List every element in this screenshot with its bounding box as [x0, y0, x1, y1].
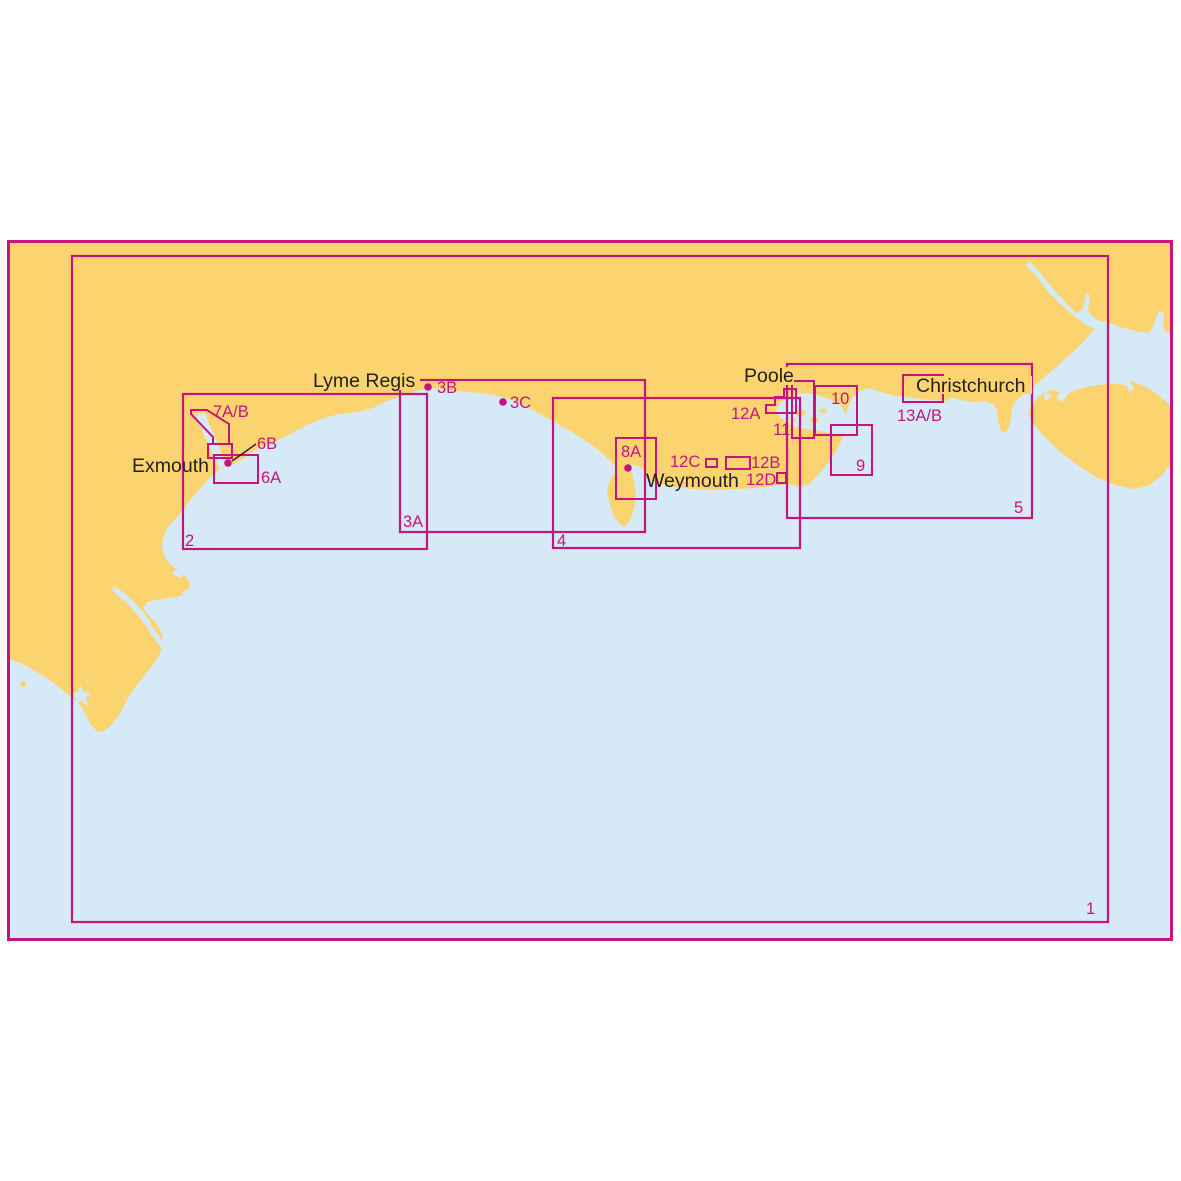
chart-label-10[interactable]: 10	[831, 390, 849, 408]
chart-index-map: Exmouth Lyme Regis Weymouth Poole Christ…	[0, 0, 1181, 1181]
chart-label-3a[interactable]: 3A	[403, 513, 423, 531]
chart-label-9[interactable]: 9	[856, 457, 865, 475]
lyme-regis-position-dot	[424, 383, 432, 391]
weymouth-position-dot	[624, 464, 632, 472]
chart-label-4[interactable]: 4	[557, 532, 566, 550]
chart-label-1[interactable]: 1	[1086, 900, 1095, 918]
chart-label-12b[interactable]: 12B	[751, 454, 780, 472]
town-label-christchurch: Christchurch	[916, 375, 1025, 397]
town-label-poole: Poole	[744, 365, 794, 387]
chart-label-5[interactable]: 5	[1014, 499, 1023, 517]
chart-3c-position-dot	[499, 398, 507, 406]
chart-label-2[interactable]: 2	[185, 532, 194, 550]
small-island	[20, 681, 26, 687]
chart-label-12d[interactable]: 12D	[746, 471, 776, 489]
exmouth-position-dot	[224, 459, 232, 467]
town-label-exmouth: Exmouth	[132, 455, 209, 477]
chart-index-page: Exmouth Lyme Regis Weymouth Poole Christ…	[0, 0, 1181, 1181]
chart-label-3b[interactable]: 3B	[437, 379, 457, 397]
town-label-lyme-regis: Lyme Regis	[313, 370, 415, 392]
chart-label-11[interactable]: 11	[773, 421, 790, 439]
chart-label-7ab[interactable]: 7A/B	[213, 403, 249, 421]
poole-harbour-island	[820, 409, 827, 414]
chart-label-6b[interactable]: 6B	[257, 435, 277, 453]
map-panel: Exmouth Lyme Regis Weymouth Poole Christ…	[7, 240, 1181, 941]
chart-label-8a[interactable]: 8A	[621, 443, 641, 461]
chart-label-13ab[interactable]: 13A/B	[897, 407, 942, 425]
town-label-weymouth: Weymouth	[646, 470, 739, 492]
chart-label-12c[interactable]: 12C	[670, 453, 700, 471]
chart-label-6a[interactable]: 6A	[261, 469, 281, 487]
chart-label-12a[interactable]: 12A	[731, 405, 760, 423]
chart-label-3c[interactable]: 3C	[510, 394, 531, 412]
